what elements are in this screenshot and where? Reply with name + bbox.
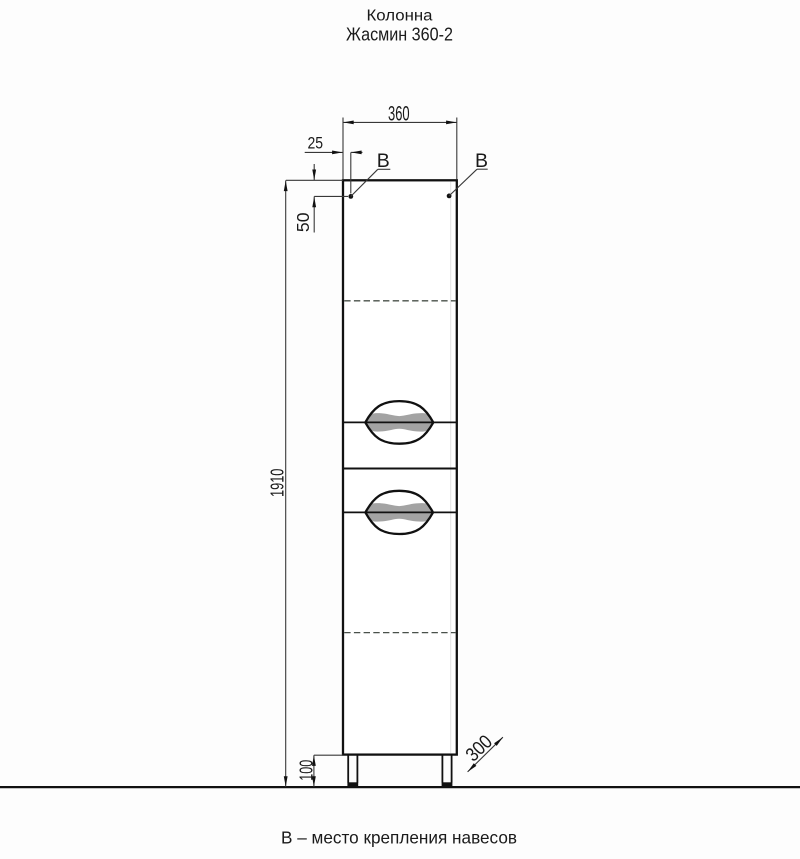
svg-text:B: B: [475, 150, 488, 172]
svg-text:Жасмин 360-2: Жасмин 360-2: [346, 24, 453, 45]
svg-text:25: 25: [308, 134, 324, 153]
svg-text:В – место крепления навесов: В – место крепления навесов: [281, 827, 517, 847]
svg-text:100: 100: [295, 760, 316, 781]
svg-text:Колонна: Колонна: [367, 7, 433, 24]
svg-text:1910: 1910: [267, 469, 287, 497]
svg-text:B: B: [377, 150, 390, 172]
svg-text:50: 50: [293, 212, 313, 232]
svg-text:360: 360: [388, 103, 410, 126]
